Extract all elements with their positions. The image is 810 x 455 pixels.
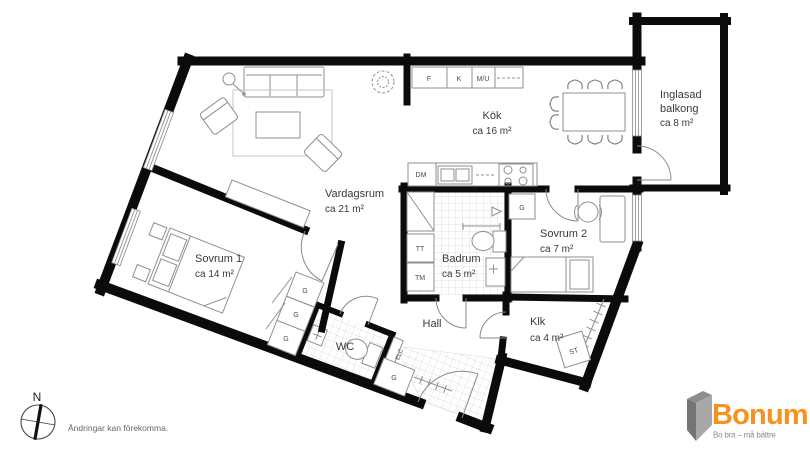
bedside-table: [133, 265, 151, 282]
single-bed: [511, 257, 593, 292]
floor-lamp: [223, 73, 246, 96]
disclaimer-text: Ändringar kan förekomma.: [68, 423, 168, 433]
hall-label: Hall: [423, 318, 442, 330]
vardagsrum-furniture: [199, 67, 394, 228]
north-label: N: [33, 390, 42, 404]
desk-chair: [575, 202, 602, 222]
sovrum2-label: Sovrum 2: [540, 228, 587, 240]
window-kok-balkong: [633, 70, 642, 136]
badrum-area: ca 5 m²: [442, 269, 476, 280]
micro-oven-label: M/U: [477, 76, 490, 83]
sovrum2-furniture: G: [509, 194, 625, 292]
balkong-label-line2: balkong: [660, 103, 699, 115]
vardagsrum-area: ca 21 m²: [325, 204, 365, 215]
brand-name: Bonum: [712, 399, 808, 431]
bedside-table: [149, 223, 167, 240]
klk-label: Klk: [530, 316, 546, 328]
plant: [372, 71, 394, 93]
stove: [499, 164, 533, 186]
dryer-label: TT: [416, 246, 425, 253]
wardrobe-label: G: [519, 205, 524, 212]
klk-area: ca 4 m²: [530, 333, 564, 344]
window-vardagsrum: [143, 109, 173, 170]
compass: N: [18, 390, 58, 443]
klk-door: [480, 312, 506, 338]
kok-label: Kök: [483, 110, 502, 122]
floor-plan: G G G F K M/U DM: [0, 0, 810, 455]
armchair: [303, 133, 343, 173]
brand-logo: Bonum Bo bra – må bättre: [687, 391, 808, 441]
sofa: [244, 67, 324, 97]
kok-fixtures: F K M/U DM: [408, 67, 625, 186]
sovrum2-door: [546, 189, 578, 221]
kitchen-counter: [408, 163, 537, 186]
dining-table: [563, 93, 625, 131]
coffee-table: [256, 112, 300, 138]
shower: [407, 192, 434, 231]
sovrum1-area: ca 14 m²: [195, 269, 235, 280]
badrum-label: Badrum: [442, 253, 481, 265]
dishwasher-label: DM: [416, 172, 427, 179]
sovrum2-area: ca 7 m²: [540, 244, 574, 255]
wardrobe-label: G: [293, 312, 298, 319]
wardrobe-label: G: [391, 375, 396, 382]
badrum-toilet: [472, 231, 506, 252]
balkong-door: [637, 146, 671, 180]
freezer-label: K: [457, 76, 462, 83]
wardrobe-label: G: [283, 336, 288, 343]
wardrobe-label: G: [302, 288, 307, 295]
balkong-label-line1: Inglasad: [660, 89, 702, 101]
desk: [600, 196, 625, 242]
entry-tiles: [396, 346, 499, 423]
vardagsrum-label: Vardagsrum: [325, 188, 384, 200]
washer-label: TM: [415, 275, 425, 282]
balkong-area: ca 8 m²: [660, 118, 694, 129]
bonum-logo-icon: [687, 391, 712, 441]
badrum-sink: [486, 258, 505, 286]
kok-area: ca 16 m²: [473, 126, 513, 137]
fridge-label: F: [427, 76, 431, 83]
window-sovrum2: [633, 195, 642, 241]
wc-label: WC: [336, 341, 354, 353]
brand-tagline: Bo bra – må bättre: [713, 431, 776, 440]
floor-plan-page: G G G F K M/U DM: [0, 0, 810, 455]
sovrum1-label: Sovrum 1: [195, 253, 242, 265]
